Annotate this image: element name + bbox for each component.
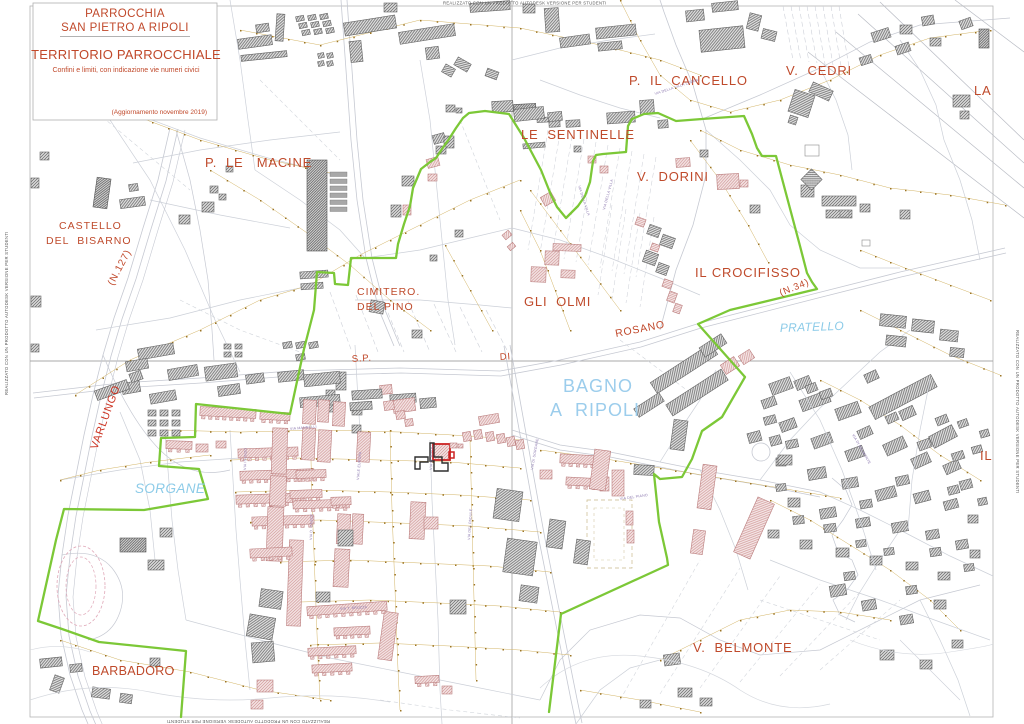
svg-text:A RIPOLI: A RIPOLI bbox=[550, 400, 640, 420]
svg-text:IL: IL bbox=[980, 448, 992, 463]
svg-text:V. BELMONTE: V. BELMONTE bbox=[693, 640, 792, 655]
svg-text:CASTELLO: CASTELLO bbox=[59, 220, 122, 232]
svg-text:(Aggiornamento novembre 2019): (Aggiornamento novembre 2019) bbox=[112, 109, 207, 116]
svg-text:SORGANE: SORGANE bbox=[135, 481, 206, 496]
svg-text:VIA ISONZO: VIA ISONZO bbox=[243, 448, 248, 471]
svg-text:DEL PINO: DEL PINO bbox=[357, 301, 414, 313]
svg-text:PRATELLO: PRATELLO bbox=[780, 319, 845, 335]
svg-text:GLI OLMI: GLI OLMI bbox=[524, 294, 591, 309]
svg-text:PARROCCHIA: PARROCCHIA bbox=[85, 8, 165, 20]
svg-text:REALIZZATO CON UN PRODOTTO AUT: REALIZZATO CON UN PRODOTTO AUTODESK VERS… bbox=[4, 231, 9, 395]
svg-text:DEL BISARNO: DEL BISARNO bbox=[46, 235, 132, 247]
svg-text:V. DORINI: V. DORINI bbox=[637, 169, 709, 184]
svg-text:REALIZZATO CON UN PRODOTTO AUT: REALIZZATO CON UN PRODOTTO AUTODESK VERS… bbox=[166, 719, 330, 724]
svg-text:BAGNO: BAGNO bbox=[563, 376, 633, 396]
svg-text:REALIZZATO CON UN PRODOTTO AUT: REALIZZATO CON UN PRODOTTO AUTODESK VERS… bbox=[443, 1, 607, 6]
svg-text:BARBADORO: BARBADORO bbox=[92, 664, 175, 678]
svg-text:IL CROCIFISSO: IL CROCIFISSO bbox=[695, 265, 801, 280]
svg-text:LA: LA bbox=[974, 83, 992, 98]
svg-text:DI: DI bbox=[499, 351, 511, 363]
svg-text:V. CEDRI: V. CEDRI bbox=[786, 63, 852, 78]
svg-text:S.P.: S.P. bbox=[351, 353, 372, 365]
svg-text:CIMITERO.: CIMITERO. bbox=[357, 286, 420, 298]
svg-text:LE SENTINELLE: LE SENTINELLE bbox=[521, 127, 635, 142]
svg-text:TERRITORIO PARROCCHIALE: TERRITORIO PARROCCHIALE bbox=[31, 47, 221, 62]
svg-text:REALIZZATO CON UN PRODOTTO AUT: REALIZZATO CON UN PRODOTTO AUTODESK VERS… bbox=[1015, 330, 1020, 494]
svg-text:P. LE MACINE: P. LE MACINE bbox=[205, 155, 312, 170]
svg-text:Confini e limiti, con indicazi: Confini e limiti, con indicazione vie nu… bbox=[52, 67, 200, 74]
svg-text:SAN PIETRO A RIPOLI: SAN PIETRO A RIPOLI bbox=[61, 22, 189, 34]
